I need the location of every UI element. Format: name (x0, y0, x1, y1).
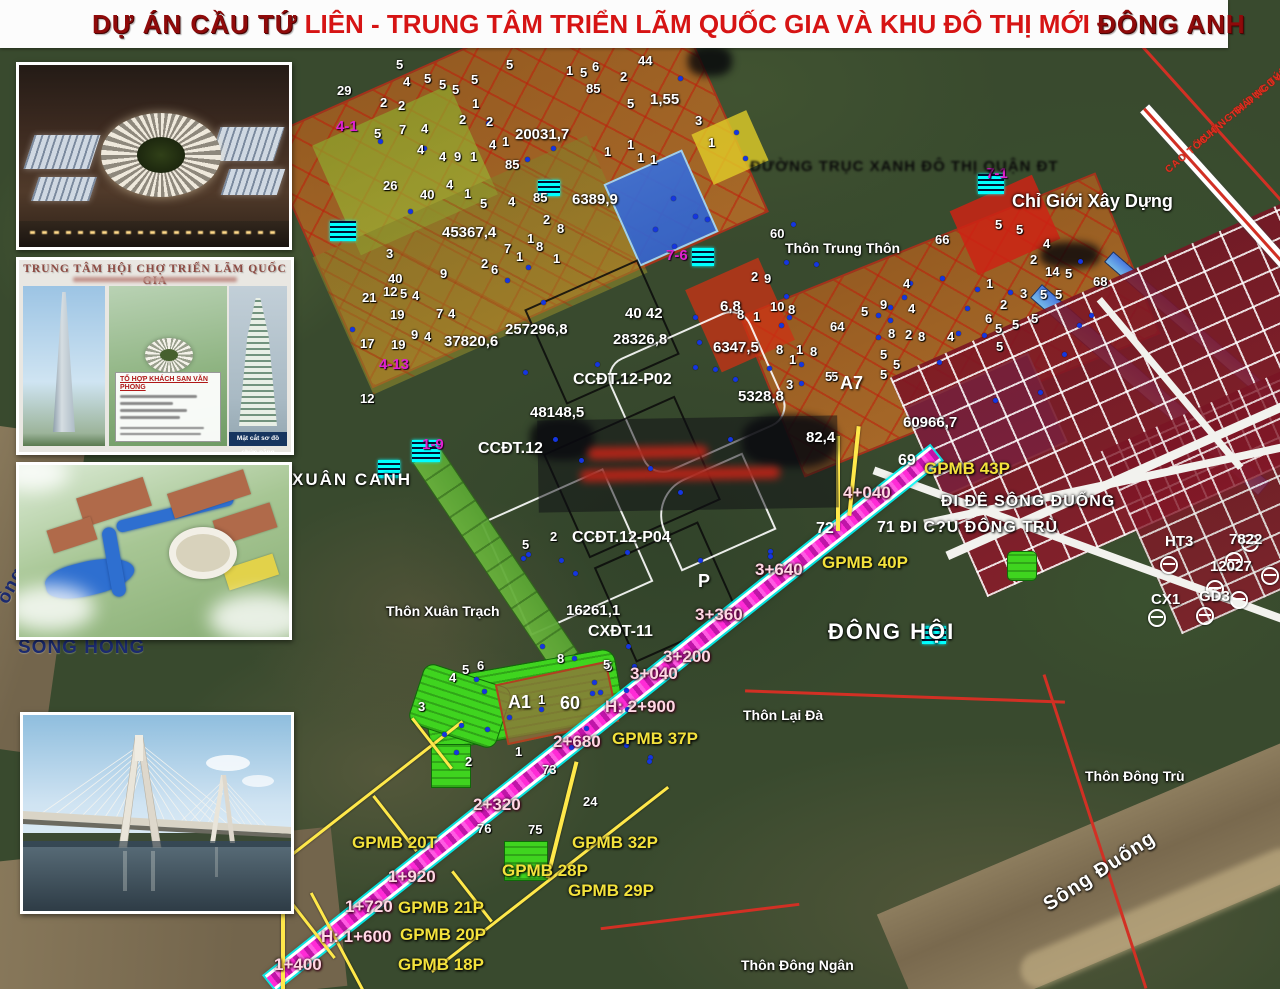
info-line-blur (120, 416, 180, 419)
parcel-number: 5 (1055, 288, 1062, 302)
parcel-number: 4 (947, 330, 954, 344)
cadastral-dot (485, 727, 490, 732)
survey-point-label: HT3 (1165, 534, 1193, 550)
parcel-number: 4 (439, 150, 446, 164)
parcel-number: 9 (764, 272, 771, 286)
parcel-number: 8 (557, 222, 564, 236)
parcel-number: 5 (471, 73, 478, 87)
cadastral-dot (784, 260, 789, 265)
parcel-number: 5 (1012, 318, 1019, 332)
title-part-project: DỰ ÁN CẦU TỨ (92, 9, 297, 39)
cadastral-dot (693, 365, 698, 370)
parcel-number: 9 (440, 267, 447, 281)
place-label: Chỉ Giới Xây Dựng (1012, 192, 1173, 211)
parcel-number: 68 (1093, 275, 1107, 289)
parcel-number: 1 (527, 232, 534, 246)
gpmb-label: GPMB 20T (352, 834, 437, 852)
survey-benchmark-icon (1148, 609, 1166, 627)
parcel-number: 5 (374, 127, 381, 141)
parcel-number: 2 (1000, 298, 1007, 312)
cadastral-dot (459, 723, 464, 728)
parcel-number: 5 (480, 197, 487, 211)
area-number: 6389,9 (572, 192, 618, 208)
parcel-number: 64 (830, 320, 844, 334)
parcel-number: 1 (753, 310, 760, 324)
survey-point-label: CX1 (1151, 592, 1180, 608)
parcel-number: 1 (789, 353, 796, 367)
zone-code-label: 60 (560, 694, 580, 713)
parcel-number: 8 (737, 308, 744, 322)
parcel-number: 40 (420, 188, 434, 202)
parcel-number: 2 (459, 113, 466, 127)
cadastral-dot (876, 313, 881, 318)
parcel-number: 1 (553, 252, 560, 266)
parcel-number: 5 (825, 370, 832, 384)
parcel-number: 5 (580, 66, 587, 80)
parcel-number: 5 (1031, 312, 1038, 326)
parcel-number: 2 (380, 96, 387, 110)
parcel-number: 5 (400, 287, 407, 301)
parcel-number: 8 (776, 343, 783, 357)
exhibition-hall (31, 177, 97, 201)
cadastral-dot (814, 262, 819, 267)
parcel-number: 4 (449, 671, 456, 685)
parcel-number: 1 (604, 145, 611, 159)
parcel-number: 3 (386, 247, 393, 261)
parcel-number: 6 (985, 312, 992, 326)
parcel-number: 75 (528, 823, 542, 837)
parcel-number: 2 (481, 257, 488, 271)
zone-code-label: P (698, 572, 710, 591)
inset-exhibition-center-panel: TRUNG TÂM HỘI CHỢ TRIỂN LÃM QUỐC GIA Mặt… (16, 257, 294, 455)
chainage-label: 2+680 (553, 733, 601, 751)
area-number: 45367,4 (442, 225, 496, 241)
parcel-number: 3 (1020, 287, 1027, 301)
parcel-number: 73 (542, 763, 556, 777)
parcel-number: 7 (399, 123, 406, 137)
exhibition-dome (101, 113, 221, 197)
info-line-blur (120, 395, 197, 398)
shadow-blob (688, 46, 732, 76)
parcel-number: 1 (627, 138, 634, 152)
parcel-number: 1 (796, 343, 803, 357)
parcel-number: 8 (788, 303, 795, 317)
zone-code-label: CXĐT-11 (588, 624, 653, 641)
gpmb-label: GPMB 43P (924, 460, 1010, 478)
cadastral-dot (784, 294, 789, 299)
area-number: 48148,5 (530, 405, 584, 421)
parcel-number: 7 (436, 307, 443, 321)
parcel-number: 8 (888, 327, 895, 341)
sheet-code-label: 4-1 (336, 119, 358, 135)
section-diagram: Mặt cắt sơ đồ chức năng (229, 286, 287, 446)
parcel-number: 3 (418, 700, 425, 714)
road-direction-label: ĐI ĐÊ SÔNG ĐUỐNG (941, 494, 1115, 511)
cadastral-dot (647, 759, 652, 764)
gpmb-label: GPMB 20P (400, 926, 486, 944)
survey-point-label: 7822 (1229, 532, 1262, 548)
parcel-number: 44 (638, 54, 652, 68)
parcel-number: 2 (398, 99, 405, 113)
road-direction-label: ĐI C?U ĐÔNG TRÙ (900, 520, 1058, 537)
area-number: 28326,8 (613, 332, 667, 348)
cadastral-dot (1062, 352, 1067, 357)
info-box: TỔ HỢP KHÁCH SẠN VĂN PHÒNG (115, 372, 221, 442)
parcel-number: 6 (491, 263, 498, 277)
parcel-number: 3 (695, 114, 702, 128)
place-label: Thôn Lại Đà (743, 708, 823, 723)
parcel-number: 1 (470, 150, 477, 164)
parcel-number: 8 (810, 345, 817, 359)
zone-code-label: A1 (508, 693, 531, 712)
cadastral-dot (982, 333, 987, 338)
place-label: Thôn Xuân Trạch (386, 604, 500, 619)
parcel-number: 4 (1043, 237, 1050, 251)
parcel-number: 2 (905, 328, 912, 342)
cadastral-dot (579, 458, 584, 463)
parcel-number: 4 (446, 178, 453, 192)
chainage-label: 3+360 (695, 606, 743, 624)
red-road-east (745, 689, 1065, 703)
place-label: Thôn Đông Trù (1085, 769, 1185, 784)
area-number: 82,4 (806, 430, 835, 446)
chainage-label: 1+920 (388, 868, 436, 886)
info-line-blur (120, 433, 201, 435)
area-number: 16261,1 (566, 603, 620, 619)
zone-code-label: CCĐT.12-P04 (572, 530, 671, 547)
parcel-number: 1 (502, 135, 509, 149)
parcel-number: 4 (448, 307, 455, 321)
inset-masterplan-render (16, 462, 292, 640)
cadastral-dot (799, 381, 804, 386)
zone-code-label: CCĐT.12-P02 (573, 372, 672, 389)
area-number: 40 42 (625, 306, 663, 322)
parcel-number: 4 (908, 302, 915, 316)
parcel-number: 6 (592, 60, 599, 74)
district-blocks (46, 516, 97, 553)
cadastral-dot (993, 398, 998, 403)
place-label: Thôn Đông Ngân (741, 958, 854, 973)
chainage-label: 3+640 (755, 561, 803, 579)
parcel-number: 4 (424, 330, 431, 344)
exhibition-hall (221, 169, 285, 195)
parcel-number: 5 (462, 663, 469, 677)
panel-header: TRUNG TÂM HỘI CHỢ TRIỂN LÃM QUỐC GIA (19, 260, 291, 287)
route-number: 69 (898, 453, 916, 470)
parcel-number: 5 (439, 78, 446, 92)
parcel-number: 26 (383, 179, 397, 193)
cadastral-dot (523, 370, 528, 375)
cadastral-dot (540, 644, 545, 649)
cadastral-dot (888, 318, 893, 323)
gpmb-label: GPMB 18P (398, 956, 484, 974)
info-line-blur (120, 409, 187, 412)
cadastral-dot (693, 315, 698, 320)
parcel-number: 8 (918, 330, 925, 344)
cadastral-dot (648, 466, 653, 471)
parcel-number: 1 (566, 64, 573, 78)
parcel-number: 6 (477, 659, 484, 673)
cadastral-dot (624, 688, 629, 693)
cadastral-dot (521, 556, 526, 561)
parcel-number: 2 (465, 755, 472, 769)
cadastral-dot (799, 362, 804, 367)
cadastral-dot (768, 554, 773, 559)
parcel-number: 85 (586, 82, 600, 96)
cadastral-dot (505, 278, 510, 283)
parcel-number: 1 (637, 151, 644, 165)
zone-code-label: A7 (840, 374, 863, 393)
cadastral-dot (728, 437, 733, 442)
cadastral-dot (350, 327, 355, 332)
tower-photo (23, 286, 105, 446)
parcel-number: 1 (650, 153, 657, 167)
red-road-bottom (601, 903, 800, 930)
area-number: 6347,5 (713, 340, 759, 356)
parcel-number: 4 (489, 138, 496, 152)
info-box-title: TỔ HỢP KHÁCH SẠN VĂN PHÒNG (120, 376, 216, 391)
cloud (16, 462, 69, 491)
parcel-number: 5 (995, 218, 1002, 232)
section-caption: Mặt cắt sơ đồ chức năng (229, 432, 287, 446)
area-number: 20031,7 (515, 127, 569, 143)
parcel-number: 29 (337, 84, 351, 98)
cadastral-dot (592, 680, 597, 685)
place-label: XUÂN CANH (292, 471, 412, 489)
foreground-road (19, 221, 289, 247)
survey-point-label: 12027 (1210, 559, 1252, 575)
inset-bridge-render (20, 712, 294, 914)
parcel-number: 4 (412, 289, 419, 303)
parcel-number: 1 (464, 187, 471, 201)
gpmb-label: GPMB 21P (398, 899, 484, 917)
parcel-number: 66 (935, 233, 949, 247)
zone-code-label: CCĐT.12 (478, 441, 543, 458)
parcel-number: 5 (1040, 288, 1047, 302)
parcel-number: 5 (627, 97, 634, 111)
cadastral-dot (559, 558, 564, 563)
planning-map-page: XUÂN CANHThôn Xuân TrạchThôn Trung ThônĐ… (0, 0, 1280, 989)
info-line-blur (120, 402, 173, 405)
cadastral-dot (595, 362, 600, 367)
parcel-number: 9 (454, 150, 461, 164)
gpmb-label: GPMB 40P (822, 554, 908, 572)
cadastral-dot (526, 552, 531, 557)
gpmb-label: GPMB 32P (572, 834, 658, 852)
parcel-number: 1 (708, 136, 715, 150)
gpmb-label: GPMB 29P (568, 882, 654, 900)
info-line-blur (120, 427, 204, 429)
parcel-number: 14 (1045, 265, 1059, 279)
cadastral-dot (767, 366, 772, 371)
chainage-label: 1+720 (345, 898, 393, 916)
parcel-number: 5 (424, 72, 431, 86)
chainage-label: H: 2+900 (605, 698, 675, 716)
parcel-number: 10 (770, 300, 784, 314)
survey-benchmark-icon (1160, 556, 1178, 574)
parcel-number: 21 (362, 291, 376, 305)
parcel-number: 76 (477, 822, 491, 836)
route-number: 71 (877, 520, 895, 537)
parcel-number: 5 (1016, 223, 1023, 237)
cadastral-dot (507, 715, 512, 720)
cadastral-dot (551, 146, 556, 151)
parcel-number: 85 (533, 191, 547, 205)
parcel-number: 2 (1030, 253, 1037, 267)
parcel-number: 5 (452, 83, 459, 97)
sheet-code-label: 1-9 (422, 437, 444, 453)
chainage-label: 2+320 (473, 796, 521, 814)
cadastral-dot (573, 571, 578, 576)
parcel-number: 5 (893, 358, 900, 372)
parcel-number: 9 (880, 298, 887, 312)
parcel-number: 7 (504, 242, 511, 256)
cadastral-dot (442, 732, 447, 737)
sheet-code-label: 7-6 (666, 248, 688, 264)
parcel-number: 19 (391, 338, 405, 352)
parcel-number: 1 (538, 693, 545, 707)
chainage-label: 3+040 (630, 665, 678, 683)
parcel-number: 4 (417, 143, 424, 157)
page-title: DỰ ÁN CẦU TỨ LIÊN - TRUNG TÂM TRIỂN LÃM … (92, 9, 1246, 40)
watermark-overlay (537, 415, 839, 512)
survey-benchmark-icon (1261, 567, 1279, 585)
parcel-number: 5 (861, 305, 868, 319)
area-number: 257296,8 (505, 322, 568, 338)
title-part-main: LIÊN - TRUNG TÂM TRIỂN LÃM QUỐC GIA VÀ K… (297, 9, 1097, 39)
road-name-label: ĐƯỜNG TRỤC XANH ĐÔ THỊ QUẬN ĐT (750, 159, 1059, 175)
bridge-illustration (23, 715, 291, 911)
survey-point-label: GD3 (1199, 589, 1230, 605)
area-number: 37820,6 (444, 334, 498, 350)
parcel-number: 3 (786, 378, 793, 392)
cadastral-dot (888, 305, 893, 310)
cloud (16, 585, 95, 631)
exhibition-dome-plan (169, 527, 237, 579)
area-number: 5328,8 (738, 389, 784, 405)
parcel-number: 1 (515, 745, 522, 759)
parcel-number: 60 (770, 227, 784, 241)
gpmb-label: GPMB 28P (502, 862, 588, 880)
cadastral-dot (937, 360, 942, 365)
river-label: SÔNG HỒNG (18, 638, 145, 658)
survey-benchmark-icon (1230, 591, 1248, 609)
parcel-number: 12 (360, 392, 374, 406)
cadastral-dot (678, 76, 683, 81)
cadastral-dot (713, 367, 718, 372)
parcel-number: 5 (603, 658, 610, 672)
parcel-number: 5 (880, 348, 887, 362)
parcel-number: 9 (411, 328, 418, 342)
parcel-number: 5 (996, 340, 1003, 354)
parcel-number: 8 (557, 652, 564, 666)
sheet-code-label: 4-13 (379, 357, 409, 373)
parcel-number: 5 (506, 58, 513, 72)
highway-direction-label: CAO TỐC HN - THÁI NGUYÊN (1164, 62, 1280, 176)
place-label: ĐÔNG HỘI (828, 620, 955, 643)
gpmb-green-patch (1008, 552, 1036, 580)
parcel-number: 24 (583, 795, 597, 809)
area-number: 1,55 (650, 92, 679, 108)
parcel-number: 1 (516, 250, 523, 264)
exhibition-dome-small (145, 338, 193, 372)
node-marker (692, 248, 714, 266)
parcel-number: 4 (421, 122, 428, 136)
parcel-number: 4 (903, 277, 910, 291)
parcel-number: 4 (403, 75, 410, 89)
parcel-number: 19 (390, 308, 404, 322)
chainage-label: 4+040 (843, 484, 891, 502)
parcel-number: 5 (880, 368, 887, 382)
parcel-number: 12 (383, 285, 397, 299)
parcel-number: 2 (543, 213, 550, 227)
parcel-number: 85 (505, 158, 519, 172)
cadastral-dot (482, 689, 487, 694)
parcel-number: 1 (472, 97, 479, 111)
inset-exhibition-night-render (16, 62, 292, 250)
parcel-number: 5 (995, 322, 1002, 336)
title-part-district: ĐÔNG ANH (1097, 9, 1246, 39)
tower-silhouette (53, 292, 75, 432)
chainage-label: H: 1+600 (321, 928, 391, 946)
cloud (209, 593, 292, 640)
cadastral-dot (791, 222, 796, 227)
parcel-number: 2 (550, 530, 557, 544)
cadastral-dot (408, 209, 413, 214)
cadastral-dot (590, 691, 595, 696)
survey-benchmark-icon (1196, 607, 1214, 625)
parcel-number: 1 (986, 277, 993, 291)
gpmb-label: GPMB 37P (612, 730, 698, 748)
place-label: Thôn Trung Thôn (785, 241, 900, 256)
parcel-number: 8 (536, 240, 543, 254)
parcel-number: 4 (508, 195, 515, 209)
cadastral-dot (584, 726, 589, 731)
parcel-number: 5 (522, 538, 529, 552)
exhibition-hall (23, 135, 100, 169)
parcel-number: 17 (360, 337, 374, 351)
parcel-number: 5 (396, 58, 403, 72)
parcel-number: 2 (486, 115, 493, 129)
title-bar: DỰ ÁN CẦU TỨ LIÊN - TRUNG TÂM TRIỂN LÃM … (0, 0, 1228, 48)
parcel-number: 2 (751, 270, 758, 284)
panel-subtitle-blur (73, 277, 236, 282)
route-number: 72 (816, 521, 834, 538)
node-marker (330, 221, 356, 241)
parcel-number: 2 (620, 70, 627, 84)
area-number: 60966,7 (903, 415, 957, 431)
cadastral-dot (1078, 259, 1083, 264)
parcel-number: 5 (1065, 267, 1072, 281)
chainage-label: 1+400 (274, 956, 322, 974)
stepped-tower-diagram (239, 298, 277, 426)
